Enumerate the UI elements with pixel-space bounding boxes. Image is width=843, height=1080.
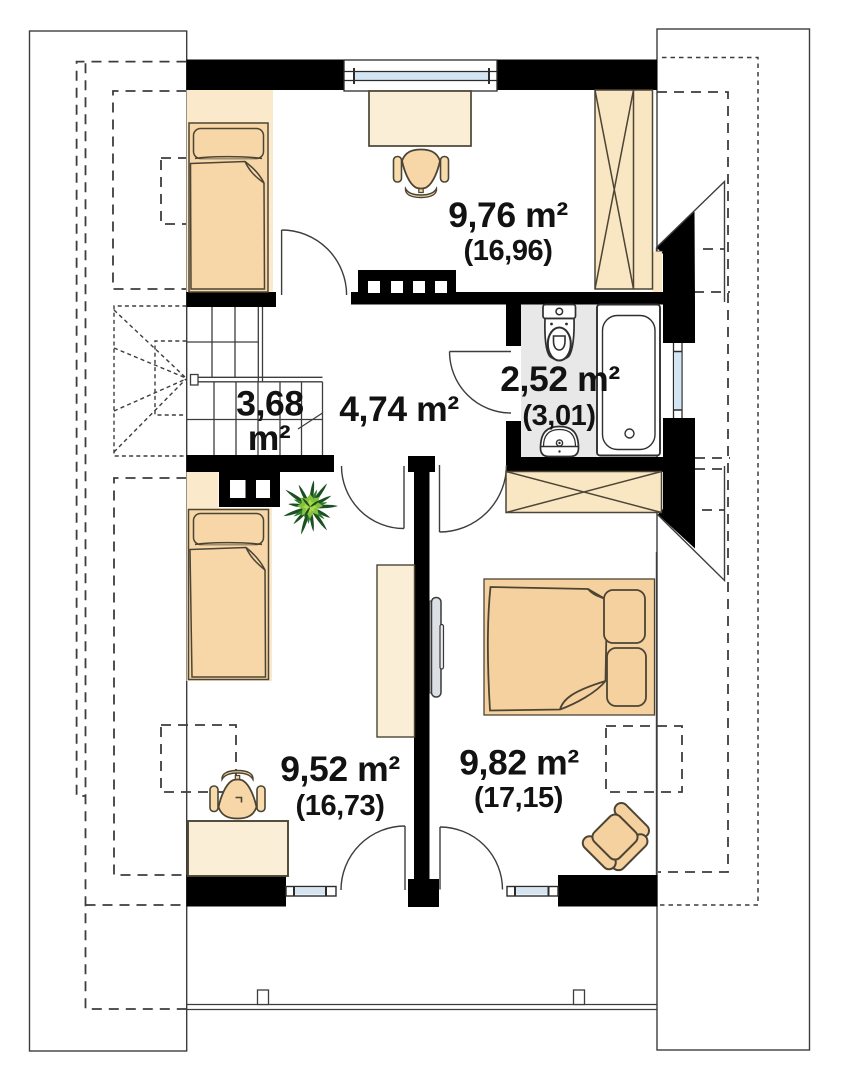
svg-text:(16,73): (16,73) <box>295 790 384 822</box>
svg-text:4,74 m²: 4,74 m² <box>339 389 459 429</box>
svg-text:(17,15): (17,15) <box>474 782 563 814</box>
svg-text:(16,96): (16,96) <box>463 235 552 267</box>
svg-text:(3,01): (3,01) <box>522 400 595 432</box>
svg-text:9,82 m²: 9,82 m² <box>459 743 579 783</box>
svg-text:9,52 m²: 9,52 m² <box>280 749 400 789</box>
svg-text:2,52 m²: 2,52 m² <box>500 359 620 399</box>
svg-text:9,76 m²: 9,76 m² <box>448 195 568 235</box>
svg-text:m²: m² <box>248 418 291 458</box>
